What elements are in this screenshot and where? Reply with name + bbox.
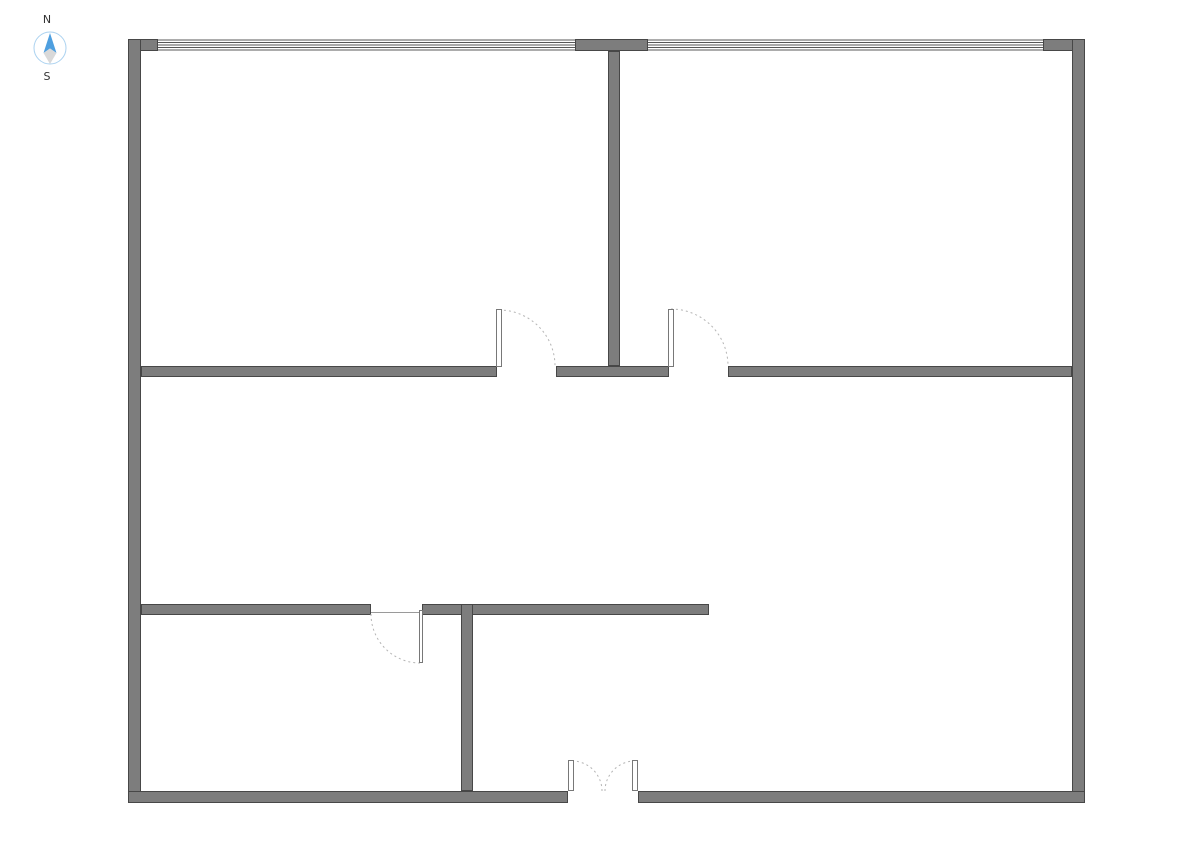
compass: N S — [34, 13, 66, 83]
double-door-left-leaf — [569, 761, 574, 791]
compass-south-label: S — [44, 70, 51, 83]
middle-wall-right-segment — [729, 367, 1072, 377]
lower-rooms-divider-wall — [462, 605, 473, 791]
middle-wall-center-segment — [557, 367, 669, 377]
upper-right-door-leaf — [669, 310, 674, 367]
exterior-left-wall — [129, 40, 141, 803]
upper-left-door-leaf — [497, 310, 502, 367]
lower-wall-left-segment — [142, 605, 371, 615]
exterior-top-wall-center-segment — [576, 40, 648, 51]
upper-left-door-swing-arc — [499, 310, 555, 366]
exterior-right-wall — [1073, 40, 1085, 803]
lower-left-door-swing-arc — [371, 614, 420, 663]
middle-wall-left-segment — [142, 367, 497, 377]
upper-rooms-divider-wall — [609, 52, 620, 366]
double-door-right-swing-arc — [605, 761, 635, 791]
double-door-left-swing-arc — [572, 761, 602, 791]
upper-right-door-swing-arc — [671, 309, 728, 366]
floor-plan-svg: N S — [0, 0, 1191, 841]
exterior-bottom-wall-right-segment — [639, 792, 1085, 803]
floor-plan-canvas: N S — [0, 0, 1191, 841]
exterior-bottom-wall-left-segment — [129, 792, 568, 803]
double-door-right-leaf — [633, 761, 638, 791]
floor-plan-layers — [129, 39, 1085, 803]
lower-left-door-leaf — [420, 611, 423, 663]
compass-north-label: N — [43, 13, 51, 26]
